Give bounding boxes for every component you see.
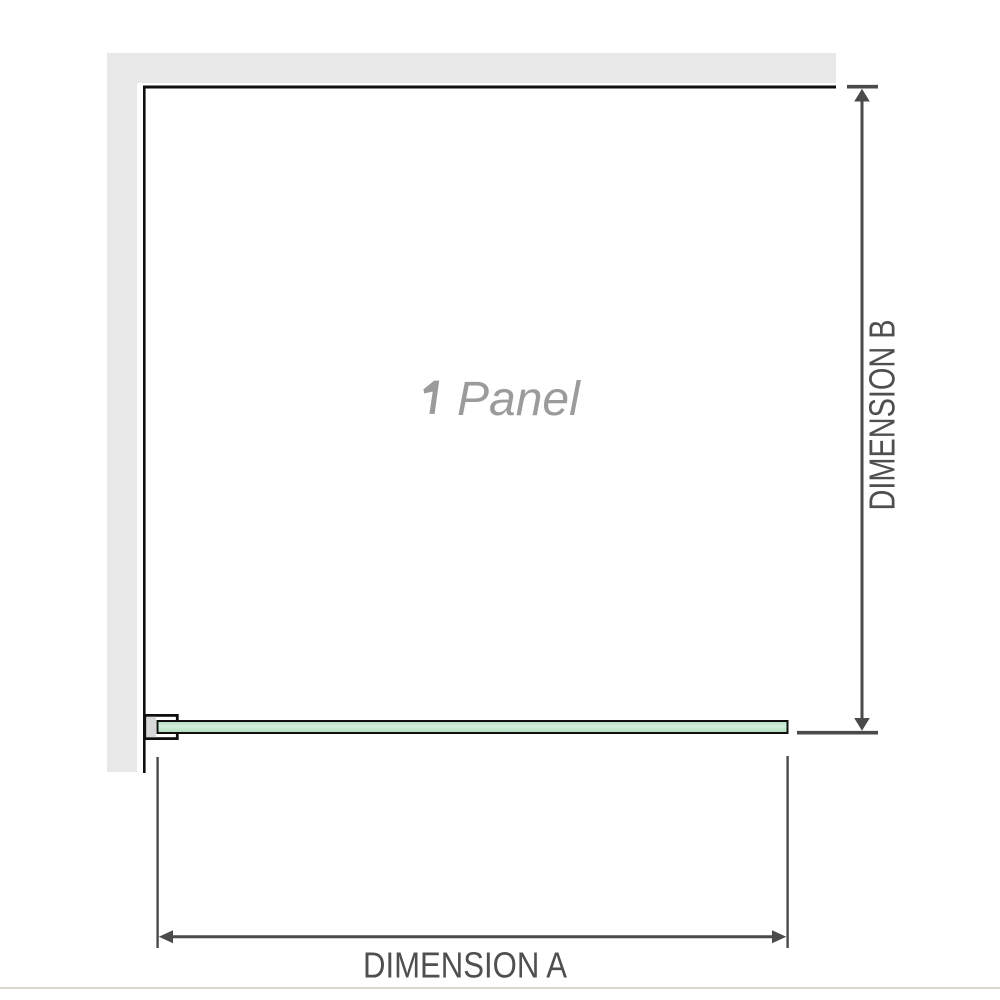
svg-text:Panel: Panel: [457, 373, 581, 426]
svg-text:DIMENSION A: DIMENSION A: [363, 945, 567, 986]
svg-text:DIMENSION B: DIMENSION B: [862, 320, 903, 511]
